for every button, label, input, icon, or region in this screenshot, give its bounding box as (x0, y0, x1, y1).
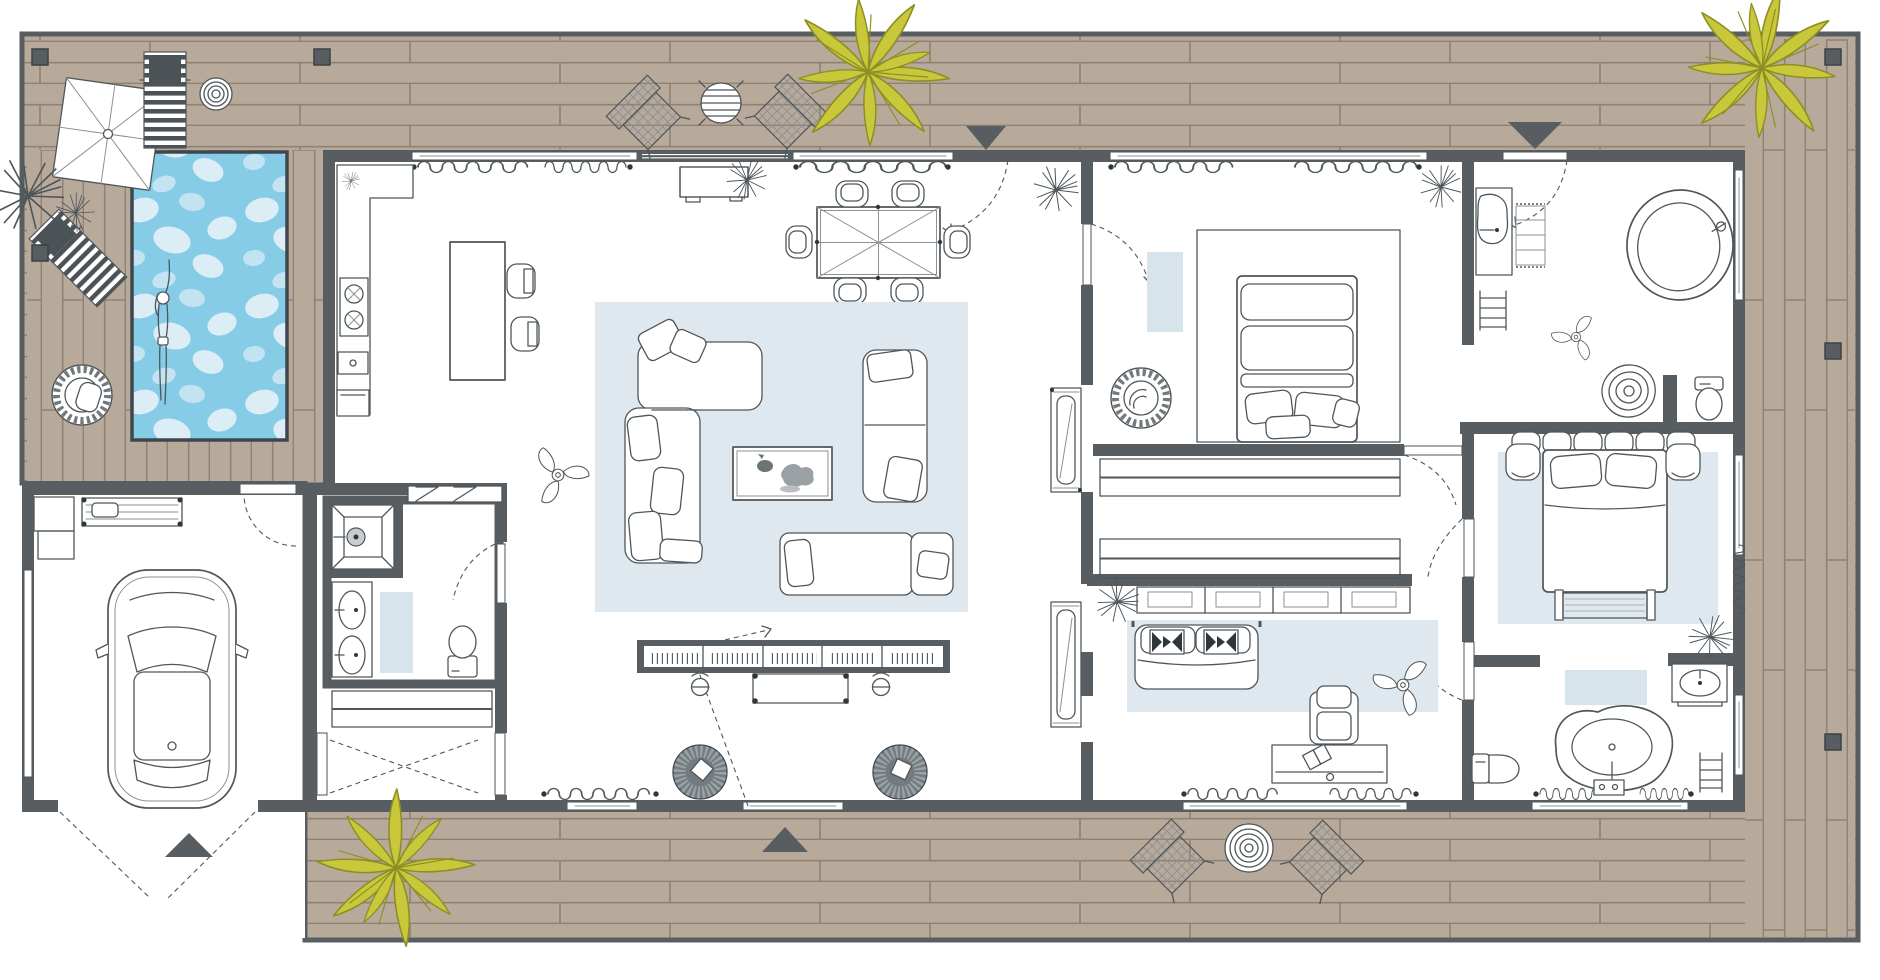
tall-cabinet-2 (1051, 602, 1081, 727)
dining-chair (891, 278, 923, 304)
workbench (82, 498, 183, 527)
dining-chair (786, 226, 812, 258)
round-coil-table (200, 78, 232, 110)
papasan-chair-bedroom (1111, 368, 1171, 428)
writing-desk (1272, 744, 1387, 783)
sofa (863, 349, 927, 503)
vanity-sink-2 (1672, 664, 1727, 706)
dining-table (815, 205, 942, 280)
round-pouf-left (673, 745, 727, 799)
folded-clothes-shelf (1137, 587, 1410, 613)
double-sink-vanity (332, 582, 372, 677)
toilet-2 (1472, 754, 1519, 783)
vanity-sink (1476, 188, 1512, 275)
dining-chair (944, 226, 970, 258)
car (96, 570, 248, 808)
daybed (780, 533, 953, 595)
shower (332, 505, 394, 569)
shower-partition-bottom (330, 569, 403, 578)
dining-chair (836, 181, 868, 207)
bedside-table-right (1666, 444, 1700, 480)
kitchen-sink-unit (338, 352, 368, 374)
coffee-table (733, 447, 832, 500)
tall-cabinet-1 (1050, 388, 1082, 492)
pool-water (132, 152, 287, 440)
books (710, 649, 758, 664)
books (650, 649, 698, 664)
books (769, 649, 817, 664)
bar-stool-2 (511, 317, 539, 351)
books (828, 649, 876, 664)
round-coil-mat (1225, 824, 1273, 872)
driveway (22, 810, 305, 938)
papasan-chair-pool (52, 365, 112, 425)
bed-2 (1543, 450, 1667, 592)
books (888, 649, 936, 664)
bedside-table-left (1506, 444, 1540, 480)
shower-partition (394, 503, 403, 573)
oven (337, 390, 369, 416)
dining-chair (892, 181, 924, 207)
bedside-mat (1147, 252, 1183, 332)
sun-lounger (140, 52, 190, 148)
armchair (1310, 686, 1358, 744)
guest-toilet (448, 626, 477, 677)
media-console (637, 640, 950, 673)
swimming-pool (132, 152, 287, 440)
kitchen-island (450, 242, 505, 380)
kilim-pillow-2 (1204, 630, 1238, 654)
guest-bath-mat (380, 592, 413, 673)
round-pouf-right (873, 745, 927, 799)
floor-plan-canvas: Architectural floor plan of a modern sin… (0, 0, 1880, 980)
kilim-pillow-1 (1150, 630, 1184, 654)
floor-plan-drawing: Architectural floor plan of a modern sin… (0, 0, 1880, 980)
bar-stool-1 (507, 264, 535, 298)
toilet-1 (1695, 377, 1723, 420)
dining-chair (834, 278, 866, 304)
bath2-mat (1565, 670, 1647, 705)
media-sofa (1133, 621, 1260, 689)
right-deck-planks-vertical (1745, 39, 1855, 937)
